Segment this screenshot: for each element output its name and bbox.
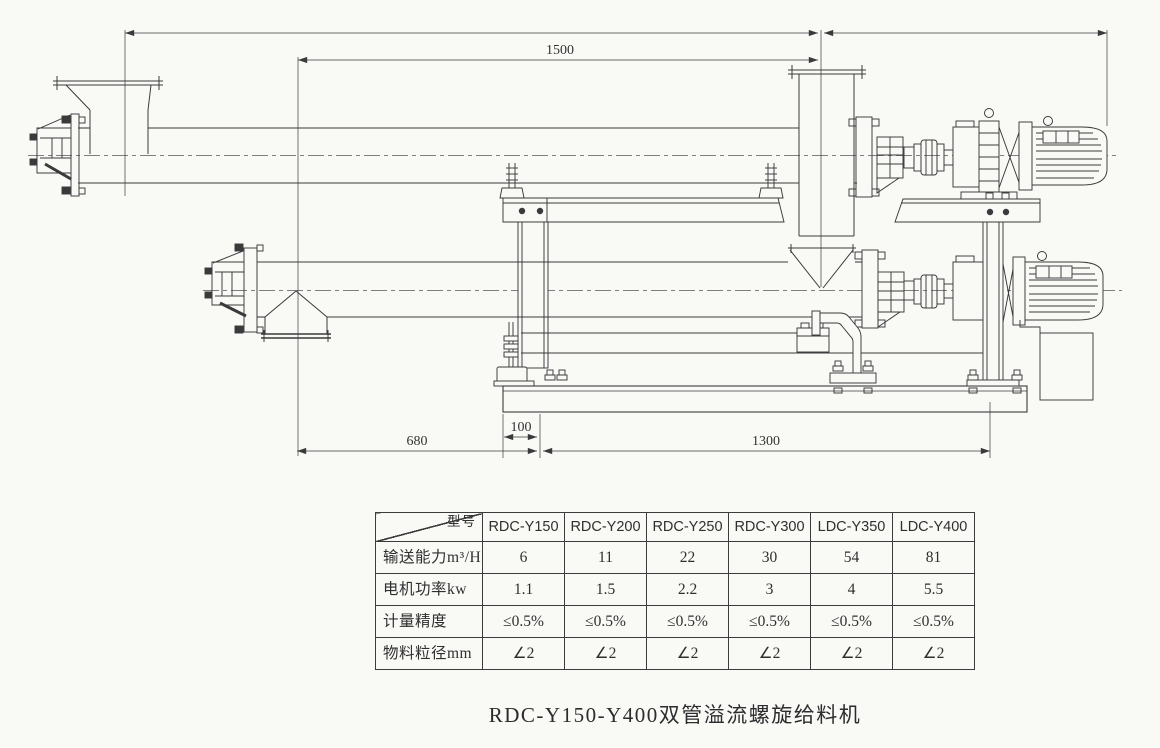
dimension-label-100: 100 — [511, 420, 532, 435]
load-cell-rod — [504, 322, 518, 367]
coupling — [914, 140, 953, 175]
lifting-eye — [1038, 252, 1047, 261]
support-column-left — [494, 222, 567, 386]
lifting-eye — [985, 109, 994, 118]
table-header-row: 型号 RDC-Y150 RDC-Y200 RDC-Y250 RDC-Y300 L… — [376, 513, 975, 542]
table-cell: ≤0.5% — [483, 606, 565, 638]
table-cell: 1.1 — [483, 574, 565, 606]
table-cell: ∠2 — [811, 638, 893, 670]
motor-flange-plate — [1019, 122, 1032, 190]
table-cell: ≤0.5% — [647, 606, 729, 638]
dimension-label-1500: 1500 — [546, 43, 574, 58]
table-cell: ∠2 — [565, 638, 647, 670]
model-column-header: LDC-Y350 — [811, 513, 893, 542]
row-label: 输送能力m³/H — [376, 542, 483, 574]
table-row-particle-size: 物料粒径mm ∠2 ∠2 ∠2 ∠2 ∠2 ∠2 — [376, 638, 975, 670]
model-column-header: LDC-Y400 — [893, 513, 975, 542]
drive-shaft — [904, 147, 914, 168]
table-cell: 4 — [811, 574, 893, 606]
bearing-gusset — [878, 312, 900, 327]
electric-motor-lower — [1025, 252, 1103, 321]
drawing-caption: RDC-Y150-Y400双管溢流螺旋给料机 — [375, 699, 975, 729]
table-cell: ≤0.5% — [811, 606, 893, 638]
row-label: 计量精度 — [376, 606, 483, 638]
drive-platform — [895, 192, 1040, 222]
motor-pedestal — [1020, 320, 1093, 400]
corner-label: 型号 — [447, 515, 476, 529]
model-column-header: RDC-Y300 — [729, 513, 811, 542]
table-row-capacity: 输送能力m³/H 6 11 22 30 54 81 — [376, 542, 975, 574]
discharge-funnel — [261, 291, 331, 342]
table-cell: ≤0.5% — [893, 606, 975, 638]
transfer-hopper — [788, 244, 856, 288]
table-cell: 2.2 — [647, 574, 729, 606]
table-cell: ∠2 — [647, 638, 729, 670]
table-row-accuracy: 计量精度 ≤0.5% ≤0.5% ≤0.5% ≤0.5% ≤0.5% ≤0.5% — [376, 606, 975, 638]
lifting-eye — [1044, 117, 1053, 126]
table-cell: 22 — [647, 542, 729, 574]
table-cell: 11 — [565, 542, 647, 574]
table-corner-cell: 型号 — [376, 513, 483, 542]
table-cell: 30 — [729, 542, 811, 574]
table-cell: 3 — [729, 574, 811, 606]
dimension-label-1300: 1300 — [752, 434, 780, 449]
coupling — [914, 275, 953, 308]
table-cell: 5.5 — [893, 574, 975, 606]
feeder-drawing-svg: 1500 680 100 1300 — [0, 0, 1160, 480]
base-rail — [503, 386, 1027, 412]
scanned-page: { "page": { "paper_color": "#f9f9f6", "i… — [0, 0, 1160, 748]
end-flange-plate — [862, 250, 878, 328]
technical-drawing: 1500 680 100 1300 — [0, 0, 1160, 480]
motor-flange-plate — [1013, 257, 1025, 325]
dimension-label-680: 680 — [407, 434, 428, 449]
spec-table: 型号 RDC-Y150 RDC-Y200 RDC-Y250 RDC-Y300 L… — [375, 512, 975, 670]
model-column-header: RDC-Y200 — [565, 513, 647, 542]
hanger-rod-left — [500, 163, 524, 198]
model-column-header: RDC-Y150 — [483, 513, 565, 542]
gear-reducer — [953, 256, 983, 320]
table-cell: 54 — [811, 542, 893, 574]
drive-unit-upper — [849, 109, 1107, 223]
bearing-gusset — [877, 178, 899, 193]
electric-motor-upper — [1032, 117, 1107, 186]
drive-unit-lower — [855, 250, 1103, 400]
row-label: 物料粒径mm — [376, 638, 483, 670]
table-cell: ∠2 — [893, 638, 975, 670]
table-cell: 6 — [483, 542, 565, 574]
end-bearing-lower-left — [205, 244, 263, 333]
table-cell: ≤0.5% — [565, 606, 647, 638]
suspended-beam — [503, 198, 784, 222]
table-cell: ∠2 — [729, 638, 811, 670]
table-cell: 1.5 — [565, 574, 647, 606]
model-column-header: RDC-Y250 — [647, 513, 729, 542]
table-cell: ≤0.5% — [729, 606, 811, 638]
table-cell: 81 — [893, 542, 975, 574]
table-cell: ∠2 — [483, 638, 565, 670]
end-flange-plate — [856, 117, 872, 197]
table-row-motor-power: 电机功率kw 1.1 1.5 2.2 3 4 5.5 — [376, 574, 975, 606]
row-label: 电机功率kw — [376, 574, 483, 606]
hanger-rod-right — [759, 163, 783, 198]
gear-reducer — [953, 109, 999, 193]
discharge-chute — [788, 65, 866, 236]
end-bearing-upper-left — [30, 114, 85, 196]
